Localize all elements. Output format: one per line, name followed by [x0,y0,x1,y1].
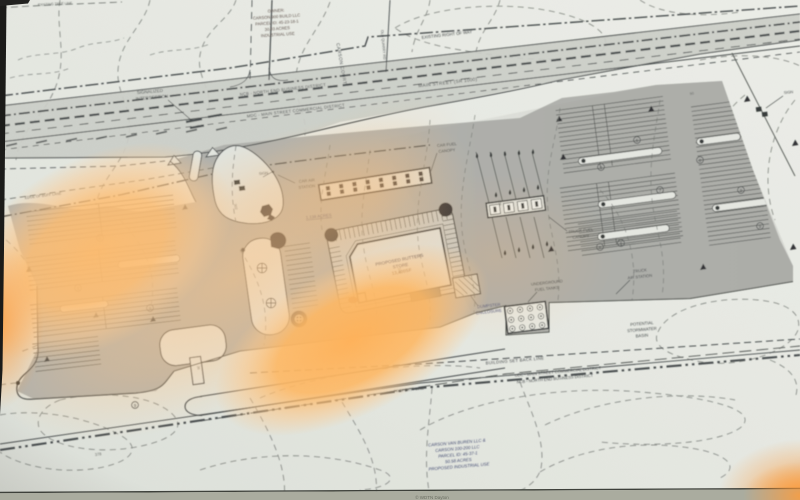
svg-text:© WDTN Dayton: © WDTN Dayton [415,494,449,500]
